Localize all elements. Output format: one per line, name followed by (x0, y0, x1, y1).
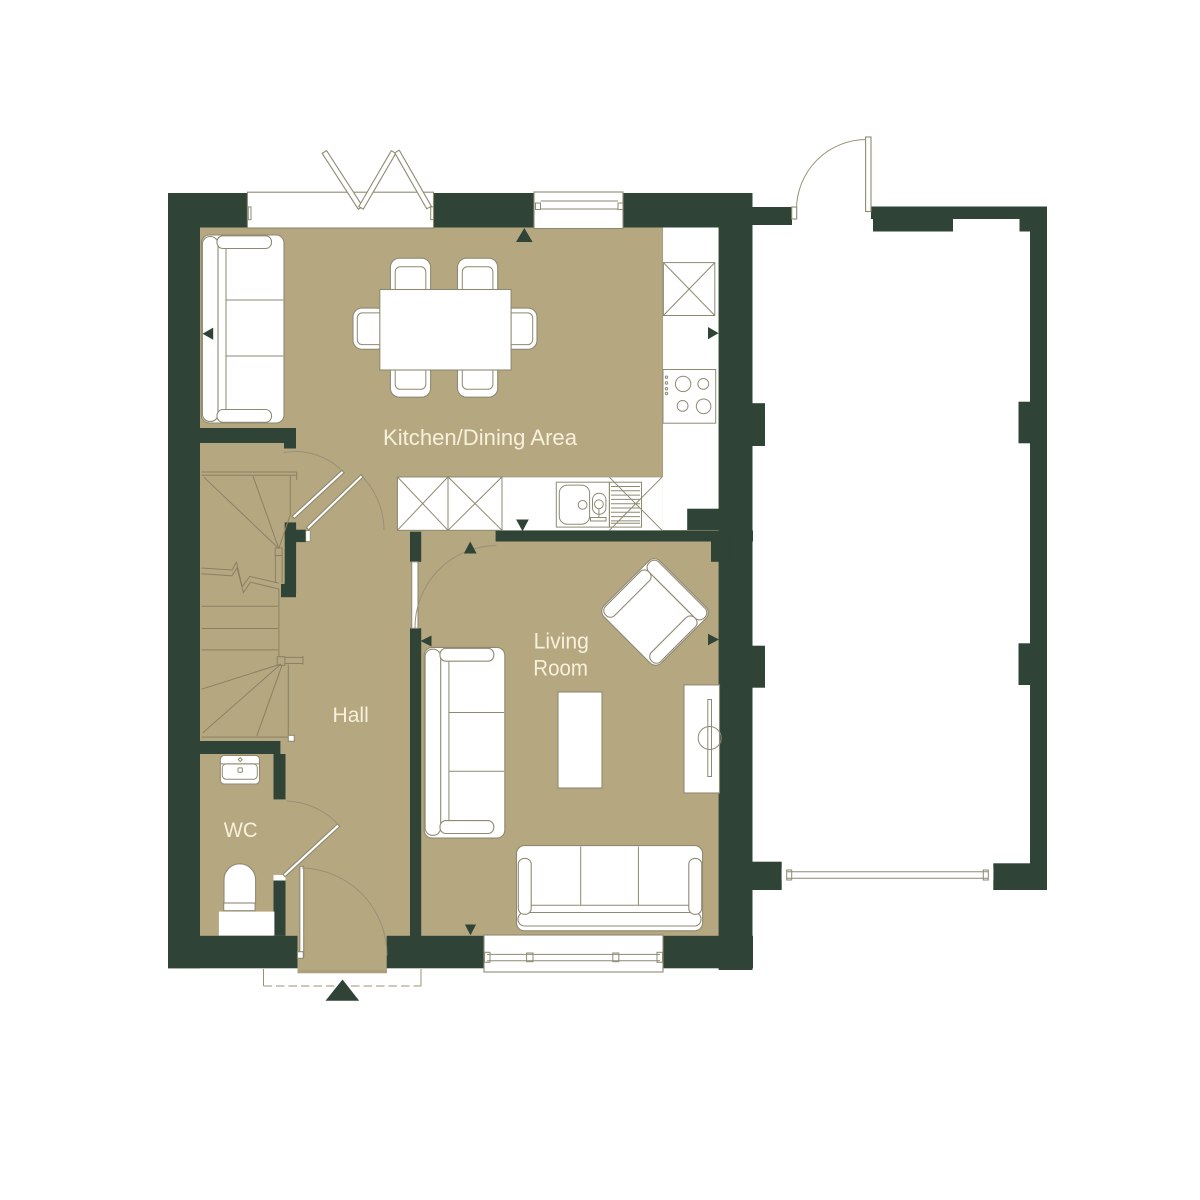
svg-text:Hall: Hall (333, 704, 369, 727)
svg-text:Kitchen/Dining Area: Kitchen/Dining Area (383, 425, 577, 450)
svg-text:WC: WC (224, 819, 258, 842)
svg-text:Room: Room (533, 656, 588, 681)
svg-text:Living: Living (534, 629, 589, 654)
